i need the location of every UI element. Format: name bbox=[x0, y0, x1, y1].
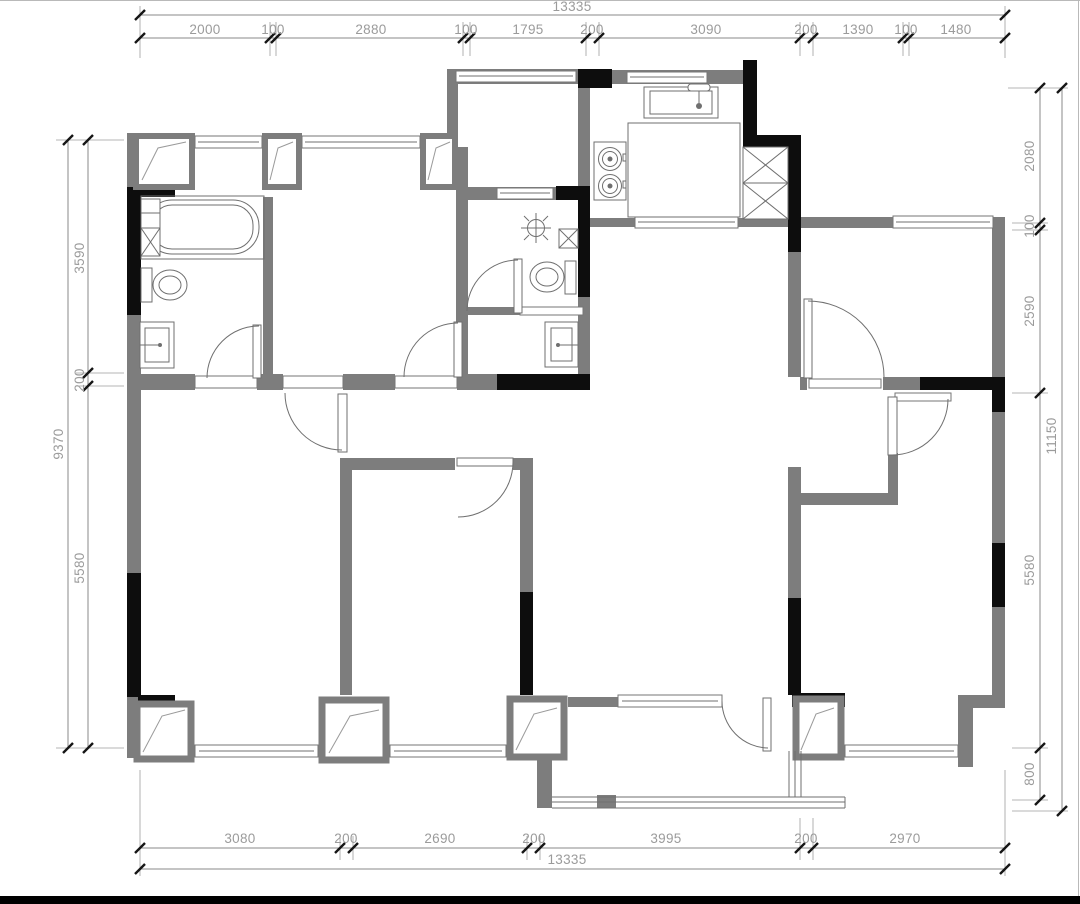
elevator-shaft bbox=[743, 147, 788, 219]
dim-label: 3080 bbox=[224, 831, 255, 846]
dim-label: 2970 bbox=[889, 831, 920, 846]
dim-label: 200 bbox=[580, 22, 603, 37]
dim-label: 200 bbox=[794, 22, 817, 37]
column bbox=[423, 136, 455, 187]
flue-shaft bbox=[141, 228, 160, 256]
door-bedroom-bottom-left bbox=[285, 393, 347, 452]
column bbox=[796, 699, 841, 757]
kitchen-sink bbox=[644, 84, 718, 118]
dim-label: 100 bbox=[454, 22, 477, 37]
door-threshold bbox=[520, 307, 583, 315]
window bbox=[497, 188, 553, 199]
dim-label: 5580 bbox=[1022, 554, 1037, 585]
balcony-railing bbox=[552, 751, 845, 808]
dim-label: 100 bbox=[261, 22, 284, 37]
dim-label: 3590 bbox=[72, 242, 87, 273]
toilet bbox=[530, 261, 576, 294]
floor-plan-canvas: 13335 2000 100 2880 100 1795 200 3090 20… bbox=[0, 0, 1080, 904]
dim-label: 100 bbox=[1022, 214, 1037, 237]
dim-label: 800 bbox=[1022, 762, 1037, 785]
door-bedroom-top-middle bbox=[404, 322, 462, 377]
window bbox=[195, 136, 262, 148]
dim-label: 1390 bbox=[842, 22, 873, 37]
dim-label: 13335 bbox=[552, 0, 591, 14]
dim-label: 2880 bbox=[355, 22, 386, 37]
door-threshold bbox=[195, 376, 257, 388]
door-bedroom-top-right bbox=[804, 299, 884, 378]
window bbox=[195, 745, 318, 757]
dimension-left: 3590 200 5580 9370 bbox=[51, 135, 124, 753]
door-bathroom-2 bbox=[467, 259, 522, 313]
bathroom-cabinet bbox=[141, 199, 160, 228]
dim-label: 3995 bbox=[650, 831, 681, 846]
dim-label: 13335 bbox=[547, 852, 586, 867]
door-bathroom-1 bbox=[207, 325, 261, 378]
dim-label: 200 bbox=[794, 831, 817, 846]
column bbox=[322, 700, 386, 760]
dim-label: 2690 bbox=[424, 831, 455, 846]
toilet bbox=[141, 268, 187, 302]
dim-label: 100 bbox=[894, 22, 917, 37]
window bbox=[302, 136, 420, 148]
flue-shaft bbox=[559, 229, 578, 248]
door-threshold bbox=[395, 376, 457, 388]
window bbox=[456, 71, 576, 82]
sink-vanity bbox=[140, 322, 174, 368]
floor-plan-drawing: 13335 2000 100 2880 100 1795 200 3090 20… bbox=[0, 0, 1080, 904]
door-threshold bbox=[283, 376, 343, 388]
door-threshold bbox=[809, 379, 881, 388]
dim-label: 200 bbox=[522, 831, 545, 846]
door-balcony bbox=[722, 698, 771, 751]
door-threshold bbox=[895, 393, 951, 401]
window bbox=[845, 745, 958, 757]
dim-label: 2590 bbox=[1022, 295, 1037, 326]
door-bedroom-bottom-middle bbox=[457, 458, 513, 517]
dim-label: 2000 bbox=[189, 22, 220, 37]
bottom-black-bar bbox=[0, 896, 1080, 904]
dimension-top: 13335 2000 100 2880 100 1795 200 3090 20… bbox=[135, 0, 1010, 58]
column bbox=[265, 136, 299, 187]
dim-label: 1480 bbox=[940, 22, 971, 37]
dim-label: 200 bbox=[72, 368, 87, 391]
door-bedroom-bottom-right bbox=[888, 397, 948, 455]
dim-label: 9370 bbox=[51, 428, 66, 459]
shower-drain bbox=[521, 213, 551, 243]
window bbox=[627, 72, 707, 83]
corner-column bbox=[137, 704, 191, 759]
dimension-bottom: 3080 200 2690 200 3995 200 2970 13335 bbox=[135, 770, 1010, 876]
corner-column bbox=[136, 136, 192, 187]
dimension-right: 2080 100 2590 5580 800 11150 bbox=[1008, 83, 1068, 816]
column bbox=[510, 699, 564, 757]
dim-label: 5580 bbox=[72, 552, 87, 583]
dim-label: 11150 bbox=[1044, 417, 1059, 454]
dim-label: 1795 bbox=[512, 22, 543, 37]
window bbox=[618, 695, 722, 707]
stove bbox=[594, 142, 626, 200]
dim-label: 3090 bbox=[690, 22, 721, 37]
window bbox=[893, 216, 993, 228]
dim-label: 200 bbox=[334, 831, 357, 846]
kitchen-counter bbox=[628, 123, 740, 217]
sink-vanity bbox=[545, 322, 578, 367]
dim-label: 2080 bbox=[1022, 140, 1037, 171]
window bbox=[390, 745, 506, 757]
window bbox=[635, 217, 738, 228]
